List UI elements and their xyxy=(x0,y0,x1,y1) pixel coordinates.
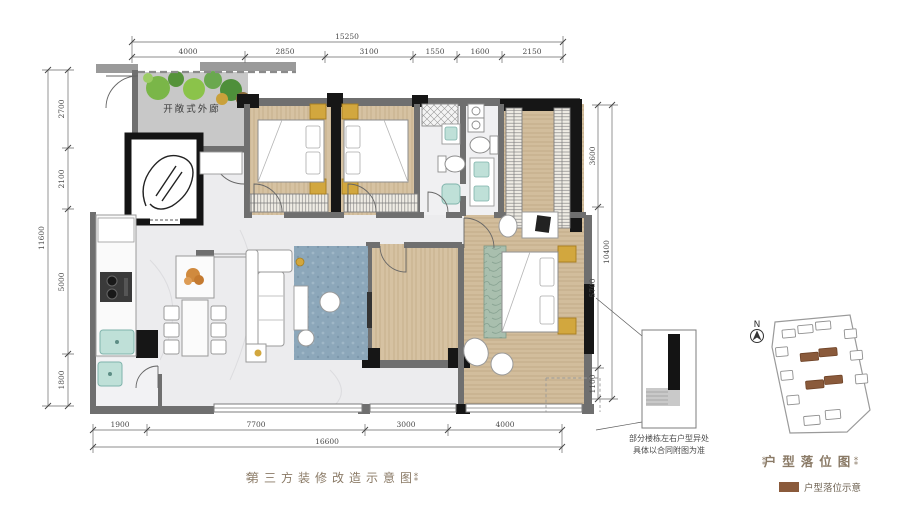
center-bedroom-floor xyxy=(368,244,460,366)
chair-icon xyxy=(499,215,517,237)
dim-text: 16600 xyxy=(315,437,339,446)
gold-decor-icon xyxy=(255,350,262,357)
windows xyxy=(214,404,582,412)
window xyxy=(214,404,362,412)
dim-text: 3000 xyxy=(396,420,415,429)
callout-note-line1: 部分楼栋左右户型异处 xyxy=(629,433,709,443)
dim-text: 2150 xyxy=(522,47,541,56)
nightstand-icon xyxy=(310,104,326,119)
dim-top: 15250 4000 2850 3100 1550 1600 2150 xyxy=(129,32,566,63)
callout-note-line2: 具体以合同附图为准 xyxy=(633,445,705,455)
washer-dryer-icon xyxy=(468,104,484,132)
dim-text: 3100 xyxy=(359,47,378,56)
dim-text: 4000 xyxy=(495,420,514,429)
ornament-icon: ⁑ xyxy=(854,456,859,468)
compass-n-label: N xyxy=(754,320,761,330)
dim-text: 1100 xyxy=(588,374,597,393)
locator-panel: N xyxy=(751,315,872,494)
fridge-icon xyxy=(98,218,134,242)
coffee-table-icon xyxy=(320,292,340,312)
laptop-icon xyxy=(535,215,551,233)
dim-text: 15250 xyxy=(335,32,359,41)
dim-text: 1600 xyxy=(470,47,489,56)
shaft-icon xyxy=(422,104,458,126)
dim-text: 2100 xyxy=(57,169,66,188)
ottoman-icon xyxy=(491,353,513,375)
dim-text: 5000 xyxy=(57,272,66,291)
armchair-icon xyxy=(298,330,314,346)
toilet-icon xyxy=(470,136,498,154)
kitchen xyxy=(96,215,136,356)
compass-icon: N xyxy=(751,320,764,343)
window xyxy=(466,404,582,412)
bedroom-b xyxy=(342,104,418,212)
footer-title-row: ⁑ 第三方装修改造示意图 ⁑ xyxy=(246,470,419,485)
dim-bottom: 1900 7700 3000 4000 16600 xyxy=(90,420,565,453)
ornament-icon: ⁑ xyxy=(414,472,419,484)
floor-lamp-icon xyxy=(296,258,304,266)
dim-right: 3600 5700 1100 10400 xyxy=(588,102,618,402)
elevator xyxy=(128,136,200,224)
site-plan xyxy=(772,315,871,433)
toilet-icon xyxy=(438,156,465,172)
nightstand-icon xyxy=(342,104,358,119)
sink-icon xyxy=(474,162,489,177)
dim-text: 10400 xyxy=(602,240,611,264)
bedroom-a xyxy=(250,104,328,212)
locator-title: 户型落位图 xyxy=(764,454,857,469)
nightstand-icon xyxy=(558,318,576,334)
tv-icon xyxy=(367,292,372,328)
dim-text: 11600 xyxy=(37,226,46,250)
corridor-label: 开敞式外廊 xyxy=(163,103,221,115)
dim-text: 7700 xyxy=(246,420,265,429)
stove-icon xyxy=(100,272,132,302)
dim-text: 4000 xyxy=(178,47,197,56)
dim-text: 1900 xyxy=(110,420,129,429)
floorplan-canvas: 开敞式外廊 15250 4000 2850 3100 1550 1600 215… xyxy=(0,0,900,527)
window xyxy=(370,404,456,412)
locator-legend: 户型落位示意 xyxy=(779,482,861,494)
bed-icon xyxy=(502,252,558,332)
sink-icon xyxy=(474,186,489,201)
legend-swatch xyxy=(779,482,799,492)
callout-detail-box xyxy=(642,330,696,428)
dining-table-icon xyxy=(182,300,208,356)
shoe-cabinet-icon xyxy=(200,152,242,174)
legend-label: 户型落位示意 xyxy=(804,482,861,494)
bed-icon xyxy=(344,120,408,182)
sink-icon xyxy=(445,127,457,140)
dim-text: 3600 xyxy=(588,146,597,165)
locator-title-row: ⁑ 户型落位图 ⁑ xyxy=(762,454,859,469)
living-area xyxy=(246,246,372,362)
callout-leader-lines xyxy=(596,298,642,430)
bed-icon xyxy=(258,120,324,182)
dim-text: 5700 xyxy=(588,278,597,297)
dim-left: 2700 2100 5000 1800 11600 xyxy=(37,67,74,409)
dim-text: 1550 xyxy=(425,47,444,56)
dim-text: 2700 xyxy=(57,99,66,118)
console-icon xyxy=(294,286,308,330)
dim-text: 2850 xyxy=(275,47,294,56)
dim-text: 1800 xyxy=(57,370,66,389)
nightstand-icon xyxy=(558,246,576,262)
plan-title: 第三方装修改造示意图 xyxy=(247,470,417,485)
